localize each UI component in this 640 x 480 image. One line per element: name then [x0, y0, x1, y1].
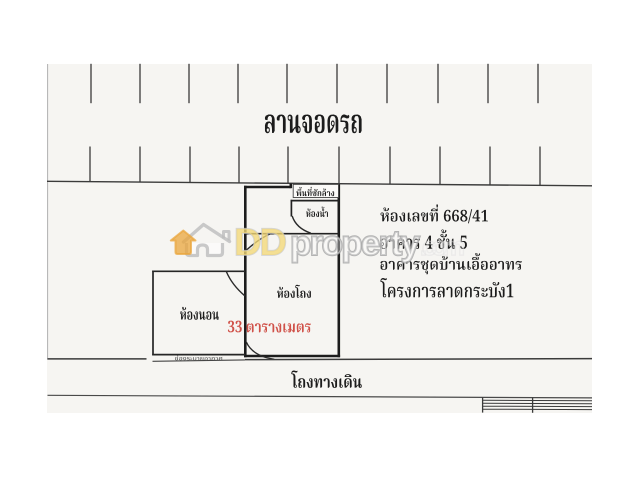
svg-text:.com: .com: [420, 231, 465, 261]
svg-text:DD: DD: [234, 222, 287, 264]
svg-text:property: property: [290, 224, 421, 263]
